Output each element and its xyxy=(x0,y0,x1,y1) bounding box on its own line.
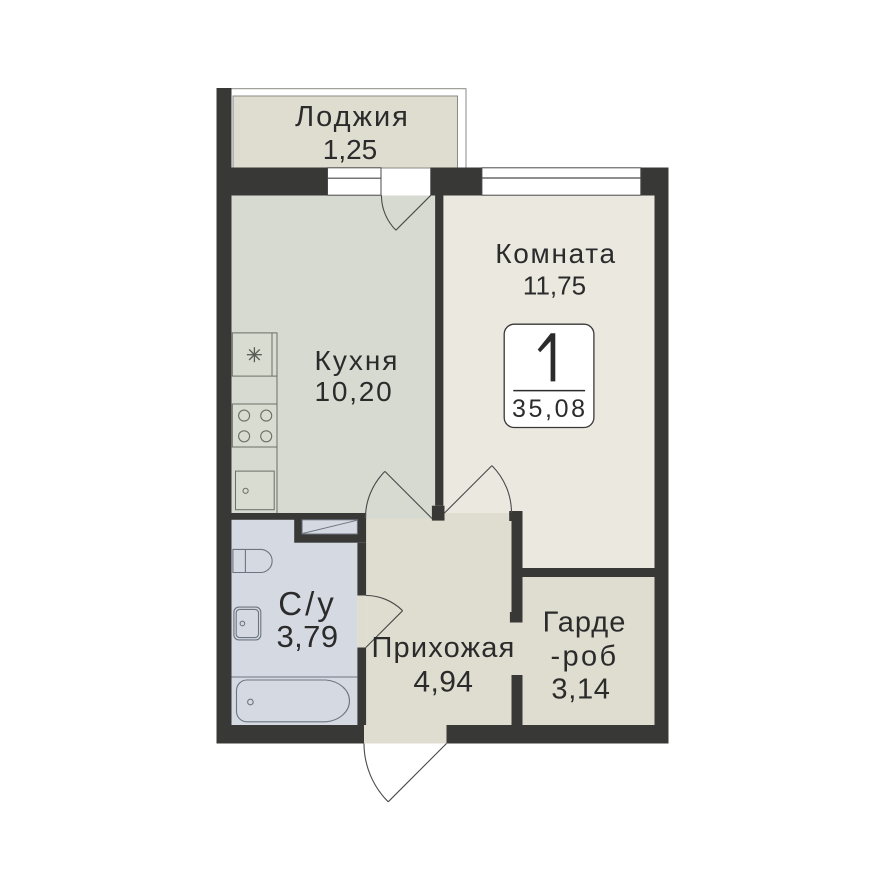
svg-text:Прихожая: Прихожая xyxy=(372,632,516,664)
svg-text:3,79: 3,79 xyxy=(277,619,339,654)
svg-text:С/у: С/у xyxy=(278,585,337,622)
svg-text:4,94: 4,94 xyxy=(413,665,473,698)
svg-text:35,08: 35,08 xyxy=(512,395,588,423)
svg-text:Комната: Комната xyxy=(495,238,617,269)
svg-text:11,75: 11,75 xyxy=(523,271,586,301)
svg-text:3,14: 3,14 xyxy=(551,674,610,706)
svg-text:10,20: 10,20 xyxy=(314,376,393,407)
svg-text:1,25: 1,25 xyxy=(323,134,378,165)
svg-text:Кухня: Кухня xyxy=(315,345,400,376)
svg-text:Гарде: Гарде xyxy=(543,607,627,639)
svg-text:-роб: -роб xyxy=(550,641,618,673)
svg-text:Лоджия: Лоджия xyxy=(295,101,410,133)
